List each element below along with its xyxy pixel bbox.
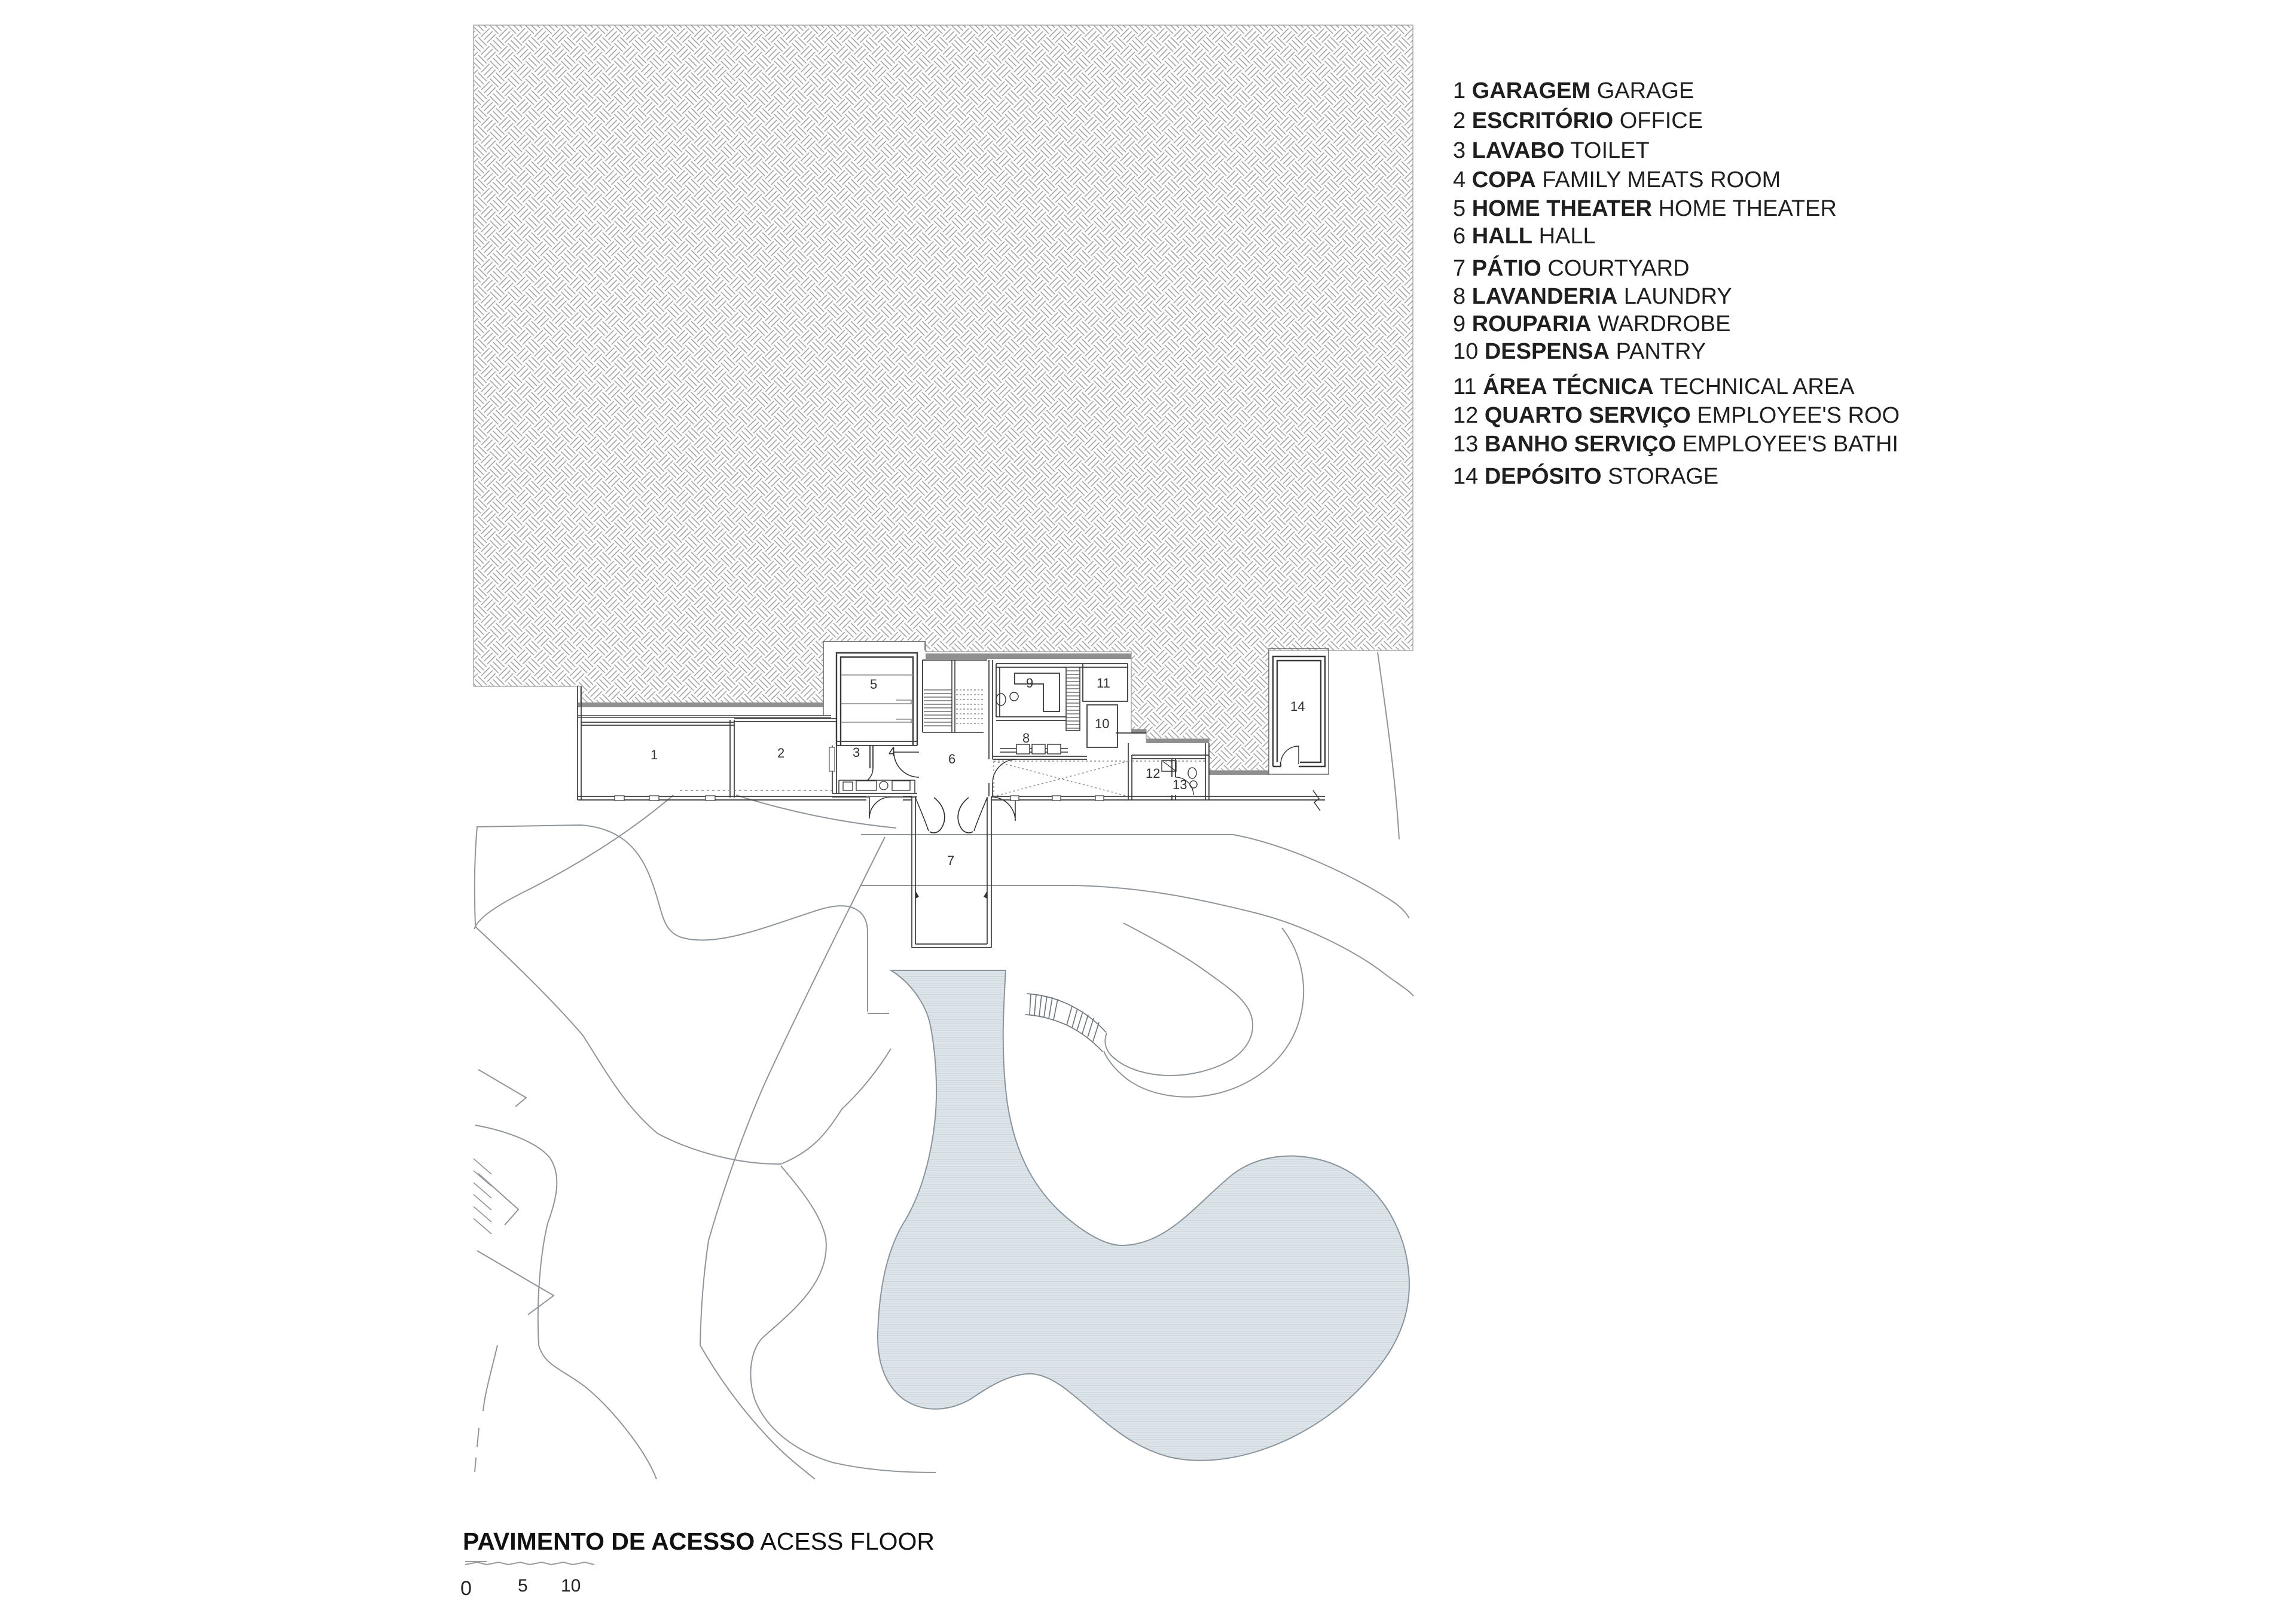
svg-text:PAVIMENTO DE ACESSO ACESS FLOO: PAVIMENTO DE ACESSO ACESS FLOOR (463, 1528, 935, 1555)
svg-text:9: 9 (1026, 676, 1033, 691)
svg-text:0: 0 (460, 1577, 472, 1600)
svg-text:5: 5 (870, 677, 877, 692)
svg-text:10 DESPENSA PANTRY: 10 DESPENSA PANTRY (1453, 339, 1706, 364)
svg-text:7: 7 (947, 853, 954, 868)
svg-text:13: 13 (1173, 777, 1187, 792)
svg-text:14 DEPÓSITO STORAGE: 14 DEPÓSITO STORAGE (1453, 463, 1718, 489)
svg-text:2 ESCRITÓRIO OFFICE: 2 ESCRITÓRIO OFFICE (1453, 107, 1703, 133)
svg-text:1 GARAGEM GARAGE: 1 GARAGEM GARAGE (1453, 78, 1694, 103)
svg-text:12: 12 (1146, 766, 1160, 781)
svg-text:11 ÁREA TÉCNICA TECHNICAL AREA: 11 ÁREA TÉCNICA TECHNICAL AREA (1453, 373, 1855, 399)
svg-text:6: 6 (948, 752, 955, 766)
svg-text:3: 3 (853, 745, 860, 760)
svg-text:12 QUARTO SERVIÇO EMPLOYEE'S R: 12 QUARTO SERVIÇO EMPLOYEE'S ROO (1453, 403, 1900, 428)
svg-text:10: 10 (1095, 716, 1109, 731)
svg-text:7 PÁTIO COURTYARD: 7 PÁTIO COURTYARD (1453, 255, 1690, 281)
svg-text:1: 1 (651, 747, 658, 762)
svg-text:13 BANHO SERVIÇO EMPLOYEE'S BA: 13 BANHO SERVIÇO EMPLOYEE'S BATHI (1453, 432, 1898, 457)
svg-text:8: 8 (1022, 731, 1030, 746)
svg-text:5: 5 (518, 1576, 528, 1596)
svg-text:8 LAVANDERIA LAUNDRY: 8 LAVANDERIA LAUNDRY (1453, 284, 1732, 309)
svg-text:14: 14 (1290, 699, 1305, 714)
svg-text:3 LAVABO TOILET: 3 LAVABO TOILET (1453, 138, 1650, 163)
svg-text:5 HOME THEATER HOME THEATER: 5 HOME THEATER HOME THEATER (1453, 196, 1837, 221)
svg-text:4 COPA FAMILY MEATS ROOM: 4 COPA FAMILY MEATS ROOM (1453, 167, 1781, 193)
svg-text:9 ROUPARIA WARDROBE: 9 ROUPARIA WARDROBE (1453, 311, 1731, 337)
svg-text:11: 11 (1097, 676, 1110, 691)
svg-text:6 HALL HALL: 6 HALL HALL (1453, 224, 1596, 249)
svg-text:10: 10 (561, 1576, 581, 1596)
svg-text:2: 2 (777, 746, 784, 760)
